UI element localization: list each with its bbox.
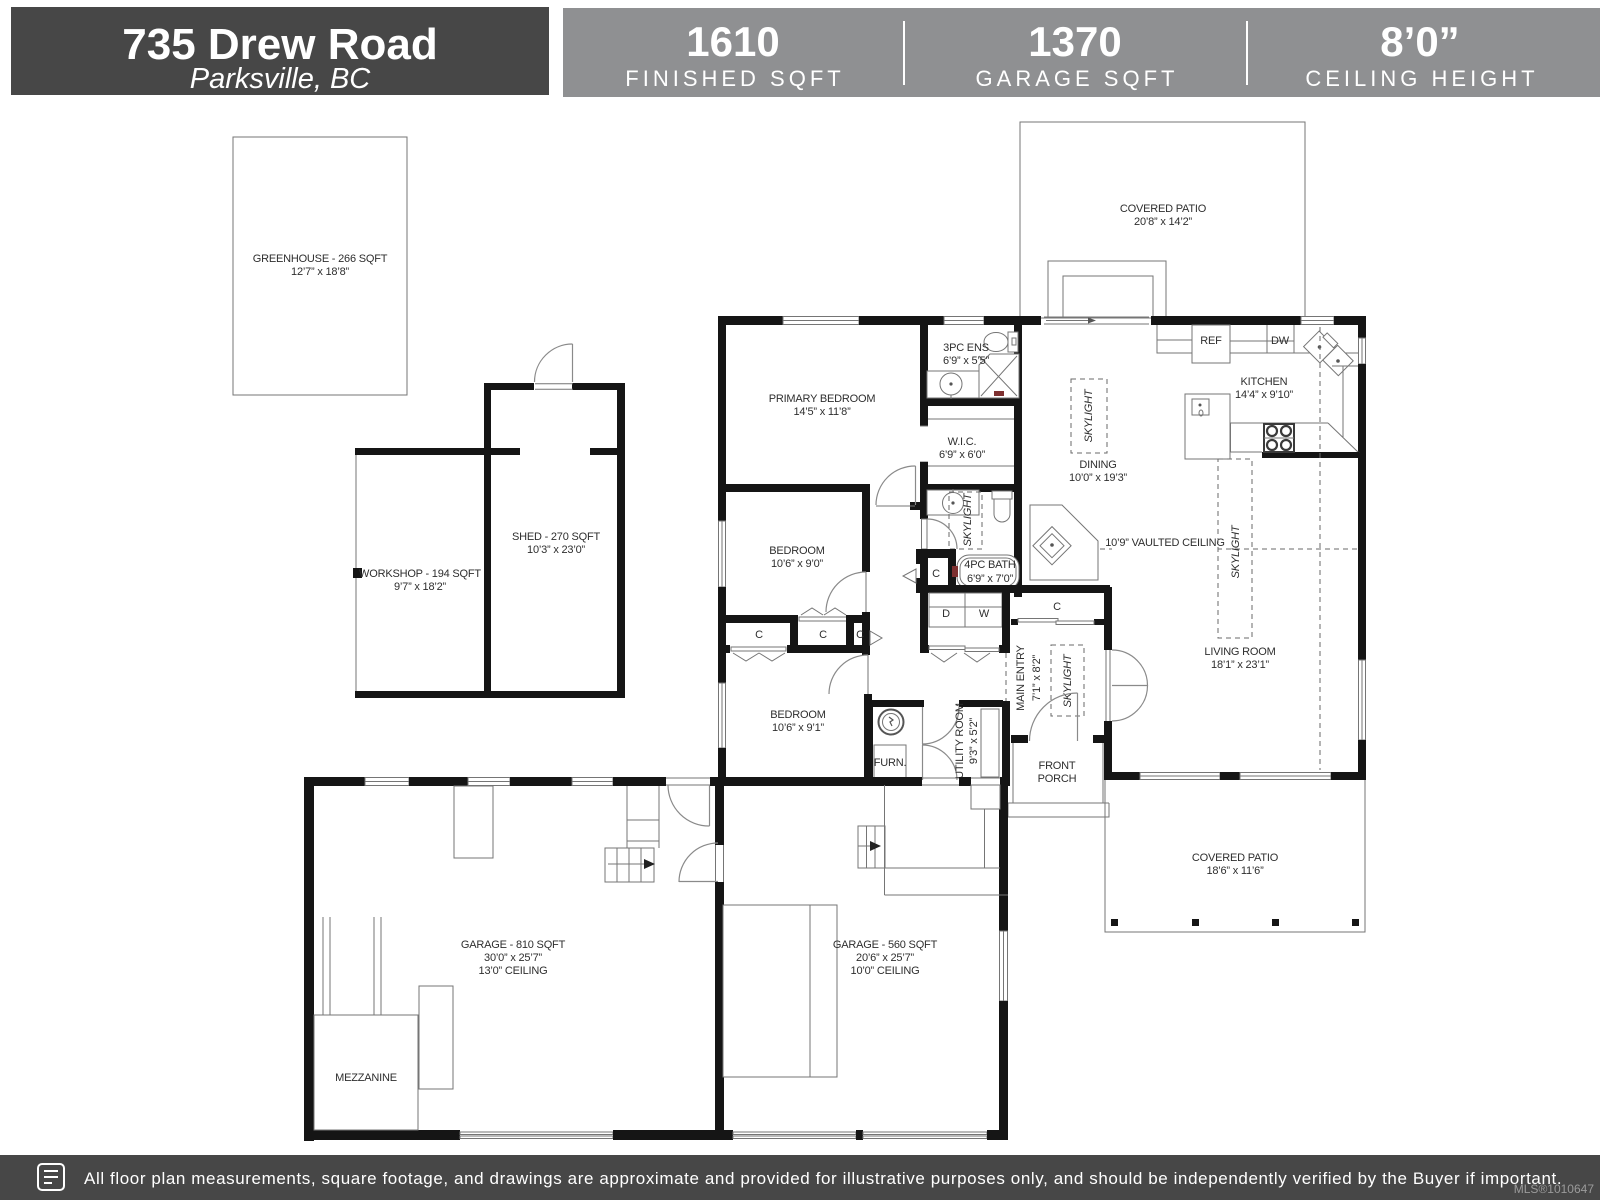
svg-text:10’3” x 23’0”: 10’3” x 23’0” [527, 544, 585, 556]
svg-text:DW: DW [1271, 335, 1290, 347]
svg-text:GARAGE - 810 SQFT: GARAGE - 810 SQFT [461, 939, 566, 951]
svg-text:12’7” x 18’8”: 12’7” x 18’8” [291, 266, 349, 278]
svg-text:All floor plan measurements, s: All floor plan measurements, square foot… [84, 1169, 1562, 1188]
svg-text:14’4” x 9’10”: 14’4” x 9’10” [1235, 389, 1293, 401]
svg-text:C: C [819, 629, 827, 641]
svg-text:BEDROOM: BEDROOM [769, 545, 824, 557]
svg-text:9’3” x 5’2”: 9’3” x 5’2” [968, 717, 980, 764]
svg-text:10’9” VAULTED CEILING: 10’9” VAULTED CEILING [1105, 537, 1225, 549]
svg-text:14’5” x 11’8”: 14’5” x 11’8” [793, 406, 851, 418]
svg-text:SKYLIGHT: SKYLIGHT [1083, 388, 1095, 442]
svg-text:DINING: DINING [1079, 459, 1116, 471]
svg-text:SKYLIGHT: SKYLIGHT [1062, 653, 1074, 707]
svg-text:Parksville, BC: Parksville, BC [190, 63, 372, 95]
svg-text:20’8” x 14’2”: 20’8” x 14’2” [1134, 216, 1192, 228]
svg-text:GARAGE SQFT: GARAGE SQFT [976, 66, 1179, 91]
svg-text:WORKSHOP - 194 SQFT: WORKSHOP - 194 SQFT [359, 568, 481, 580]
svg-text:MAIN ENTRY: MAIN ENTRY [1015, 644, 1027, 711]
svg-text:MEZZANINE: MEZZANINE [335, 1072, 397, 1084]
svg-text:FINISHED SQFT: FINISHED SQFT [625, 66, 844, 91]
svg-text:10’0” x 19’3”: 10’0” x 19’3” [1069, 472, 1127, 484]
svg-text:CEILING HEIGHT: CEILING HEIGHT [1305, 66, 1538, 91]
svg-text:10’0” CEILING: 10’0” CEILING [851, 965, 920, 977]
svg-text:1610: 1610 [686, 18, 779, 65]
svg-text:6’9” x 5’5”: 6’9” x 5’5” [943, 355, 990, 367]
svg-text:GREENHOUSE - 266 SQFT: GREENHOUSE - 266 SQFT [253, 253, 388, 265]
svg-text:C: C [932, 568, 940, 580]
svg-text:W: W [979, 608, 990, 620]
svg-text:18’6” x 11’6”: 18’6” x 11’6” [1206, 865, 1264, 877]
svg-text:D: D [942, 608, 950, 620]
svg-text:SHED - 270 SQFT: SHED - 270 SQFT [512, 531, 601, 543]
svg-text:6’9” x 6’0”: 6’9” x 6’0” [939, 449, 986, 461]
svg-text:UTILITY ROOM: UTILITY ROOM [954, 703, 966, 779]
svg-text:3PC ENS: 3PC ENS [943, 342, 989, 354]
svg-text:9’7” x 18’2”: 9’7” x 18’2” [394, 581, 447, 593]
svg-text:FRONT: FRONT [1039, 760, 1076, 772]
svg-text:W.I.C.: W.I.C. [948, 436, 977, 448]
svg-text:30’0” x 25’7”: 30’0” x 25’7” [484, 952, 542, 964]
svg-text:18’1” x 23’1”: 18’1” x 23’1” [1211, 659, 1269, 671]
svg-text:20’6” x 25’7”: 20’6” x 25’7” [856, 952, 914, 964]
svg-text:PORCH: PORCH [1038, 773, 1077, 785]
svg-text:COVERED PATIO: COVERED PATIO [1192, 852, 1279, 864]
svg-text:SKYLIGHT: SKYLIGHT [962, 492, 974, 546]
svg-text:MLS®1010647: MLS®1010647 [1514, 1182, 1595, 1196]
svg-text:8’0”: 8’0” [1380, 18, 1459, 65]
svg-text:735 Drew Road: 735 Drew Road [122, 20, 437, 69]
svg-text:REF: REF [1200, 335, 1222, 347]
svg-text:PRIMARY BEDROOM: PRIMARY BEDROOM [769, 393, 876, 405]
svg-text:LIVING ROOM: LIVING ROOM [1204, 646, 1275, 658]
svg-text:KITCHEN: KITCHEN [1241, 376, 1288, 388]
svg-text:C: C [755, 629, 763, 641]
svg-text:7’1” x 8’2”: 7’1” x 8’2” [1031, 654, 1043, 701]
svg-text:1370: 1370 [1028, 18, 1121, 65]
svg-text:FURN.: FURN. [874, 757, 907, 769]
svg-text:10’6” x 9’1”: 10’6” x 9’1” [772, 722, 825, 734]
svg-text:BEDROOM: BEDROOM [770, 709, 825, 721]
svg-text:GARAGE - 560 SQFT: GARAGE - 560 SQFT [833, 939, 938, 951]
svg-text:COVERED PATIO: COVERED PATIO [1120, 203, 1207, 215]
svg-text:C: C [1053, 601, 1061, 613]
svg-text:SKYLIGHT: SKYLIGHT [1230, 524, 1242, 578]
svg-text:C: C [856, 629, 864, 641]
svg-text:10’6” x 9’0”: 10’6” x 9’0” [771, 558, 824, 570]
svg-text:13’0” CEILING: 13’0” CEILING [479, 965, 548, 977]
svg-text:6’9” x 7’0”: 6’9” x 7’0” [967, 573, 1014, 585]
svg-text:4PC BATH: 4PC BATH [964, 559, 1016, 571]
